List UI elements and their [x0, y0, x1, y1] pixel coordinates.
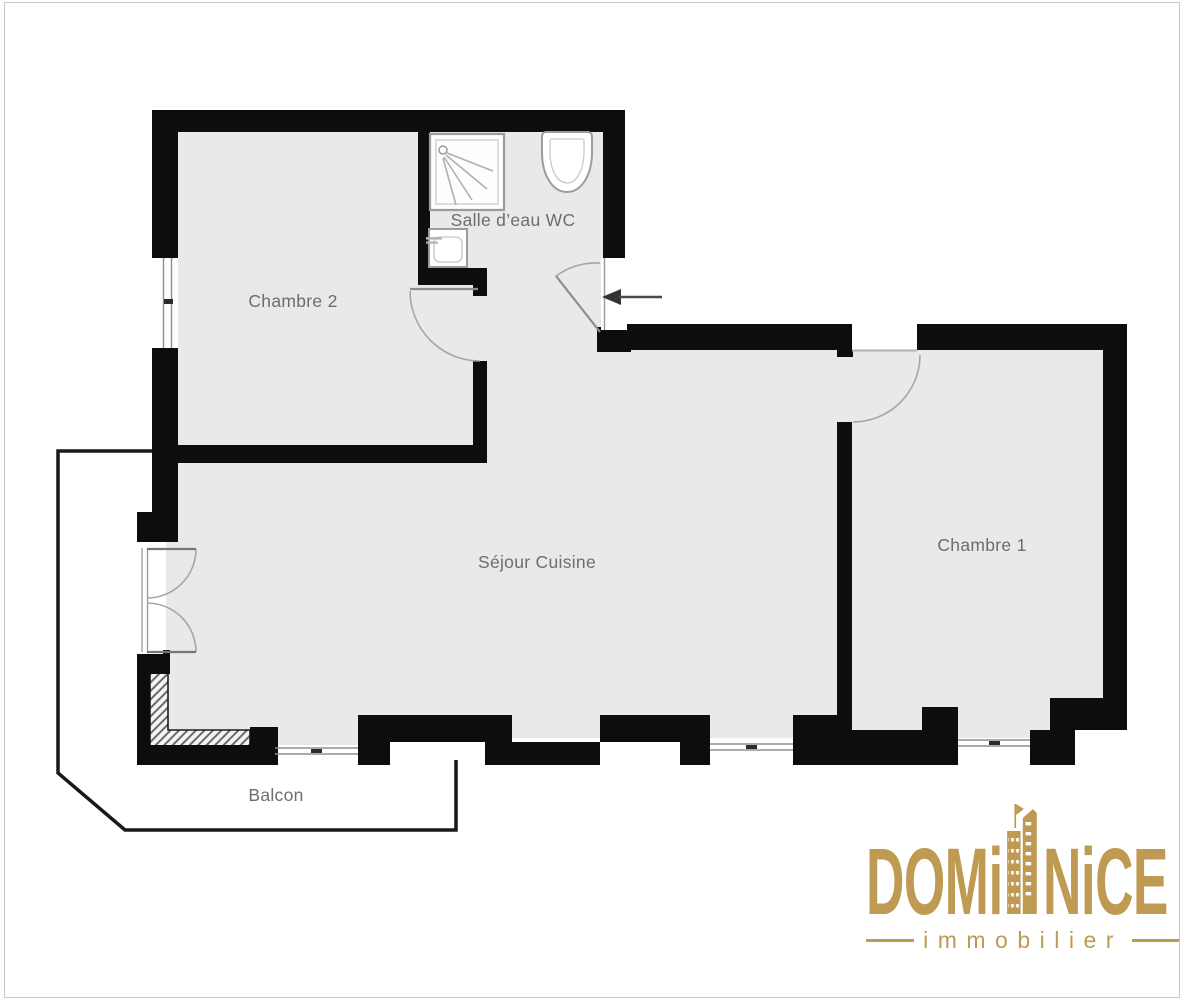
brand-wordmark: DOMi NiCE [866, 808, 1180, 920]
logo-dash [1132, 939, 1180, 942]
brand-letter-i: i [988, 829, 1002, 935]
wall [850, 730, 922, 765]
room-label-salle-deau-wc: Salle d’eau WC [451, 210, 576, 230]
apartment-floor [166, 132, 1103, 745]
wall [600, 715, 680, 742]
wall [152, 348, 178, 448]
brand-text-left: DOM [866, 829, 988, 935]
wall [137, 512, 178, 542]
wall [1050, 698, 1127, 730]
brand-text-right: NiCE [1043, 829, 1168, 935]
wall [137, 653, 150, 765]
room-label-chambre-1: Chambre 1 [937, 535, 1026, 555]
room-label-sejour-cuisine: Séjour Cuisine [478, 552, 596, 572]
wall [922, 707, 958, 765]
wall [152, 463, 178, 514]
window [152, 258, 178, 348]
wall [152, 445, 487, 463]
wall [485, 715, 512, 765]
wall [152, 132, 178, 258]
wall [512, 742, 600, 765]
logo-building-icon [1005, 802, 1041, 914]
toilet [542, 132, 592, 192]
wall [603, 110, 625, 258]
chambre1-door-opening [852, 324, 917, 351]
wall [358, 715, 390, 765]
wall [473, 361, 487, 448]
wall [1103, 324, 1127, 700]
brand-logo: DOMi NiCE immobilier [866, 808, 1180, 954]
wall [680, 715, 710, 765]
floor-plan-page: { "floor_plan": { "rooms": [ { "id": "ch… [0, 0, 1186, 1000]
wall [152, 110, 625, 132]
room-label-balcon: Balcon [248, 785, 303, 805]
washbasin [426, 229, 467, 267]
window [958, 740, 1030, 746]
wall [390, 715, 485, 742]
wall-partition [837, 422, 852, 765]
wall [837, 347, 853, 357]
logo-dash [866, 939, 914, 942]
wall [793, 715, 852, 765]
room-label-chambre-2: Chambre 2 [248, 291, 337, 311]
window [710, 744, 793, 750]
wall [1030, 730, 1075, 765]
wall [250, 727, 278, 765]
wall [418, 268, 487, 285]
shower [430, 134, 504, 210]
